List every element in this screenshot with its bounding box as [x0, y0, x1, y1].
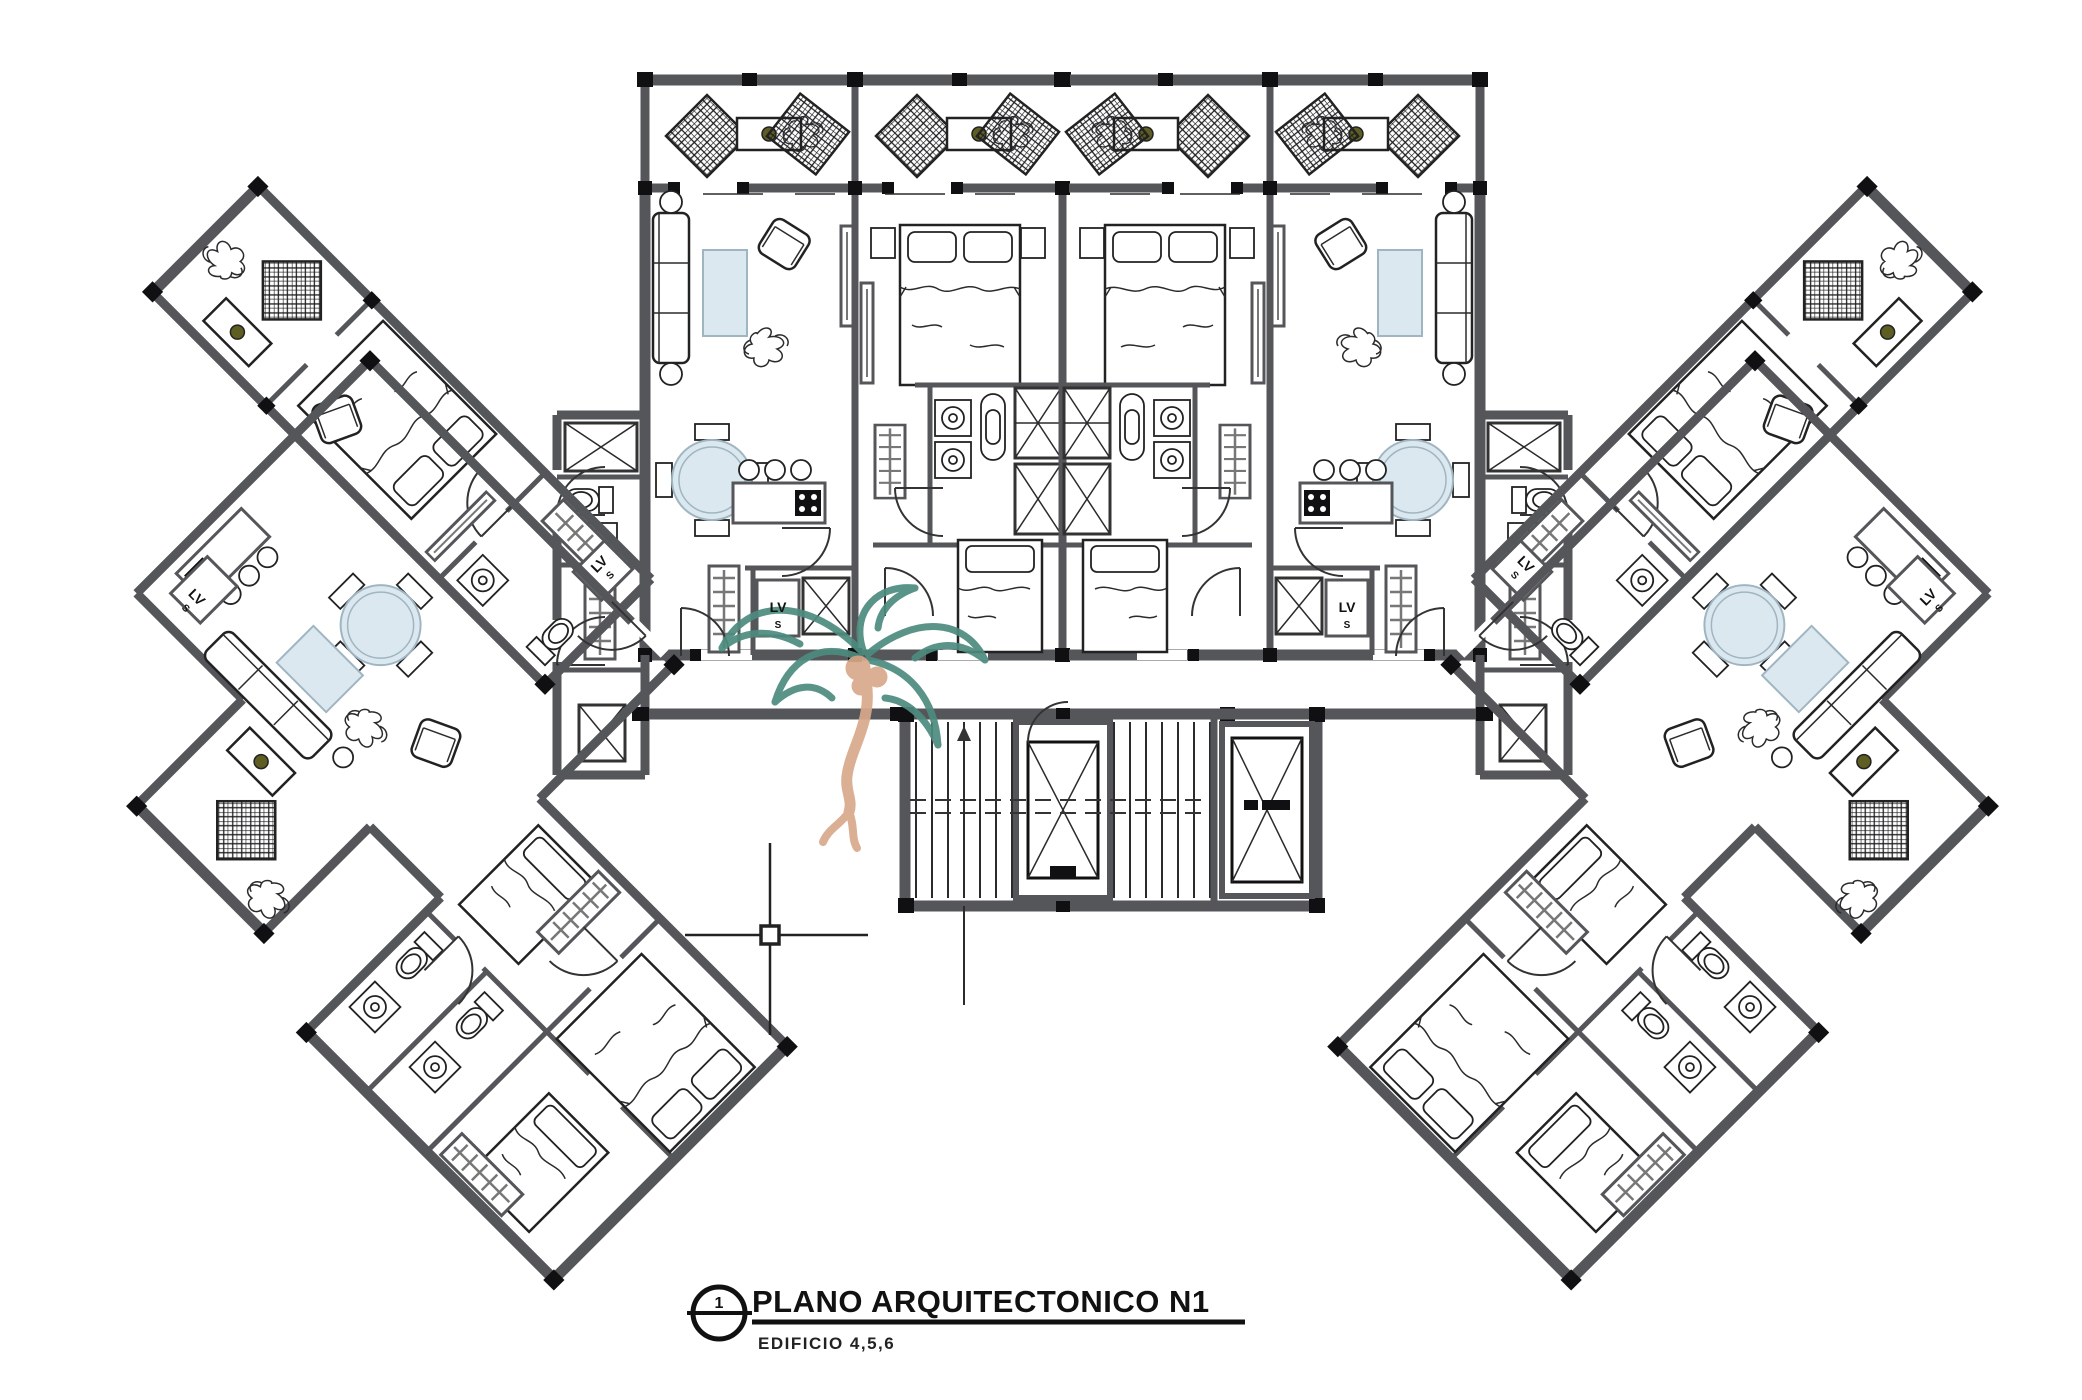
svg-text:S: S — [1344, 620, 1351, 631]
apartment-unit-inner — [861, 194, 1063, 652]
cad-crosshair-icon[interactable] — [685, 843, 868, 1035]
plan-title: PLANO ARQUITECTONICO N1 — [752, 1284, 1210, 1319]
title-block: 1 PLANO ARQUITECTONICO N1 EDIFICIO 4,5,6 — [687, 1284, 1245, 1353]
svg-text:S: S — [775, 620, 782, 631]
svg-text:LV: LV — [1339, 599, 1357, 615]
floor-plan-sheet: LV S LV S LV S LV S LV S LV S 1 PLANO AR… — [0, 0, 2082, 1400]
plan-subtitle: EDIFICIO 4,5,6 — [758, 1334, 895, 1353]
detail-number: 1 — [715, 1295, 724, 1312]
elevator-shaft-x-icon — [1222, 724, 1312, 896]
stair-elevator-core — [898, 702, 1325, 1005]
apartment-unit-outer — [653, 191, 855, 656]
balcony-bay — [666, 94, 849, 177]
svg-text:LV: LV — [770, 599, 788, 615]
floor-plan-canvas: LV S LV S LV S LV S LV S LV S 1 PLANO AR… — [0, 0, 2082, 1400]
stair-flight-icon — [1114, 722, 1210, 898]
balcony-bay — [876, 94, 1059, 177]
